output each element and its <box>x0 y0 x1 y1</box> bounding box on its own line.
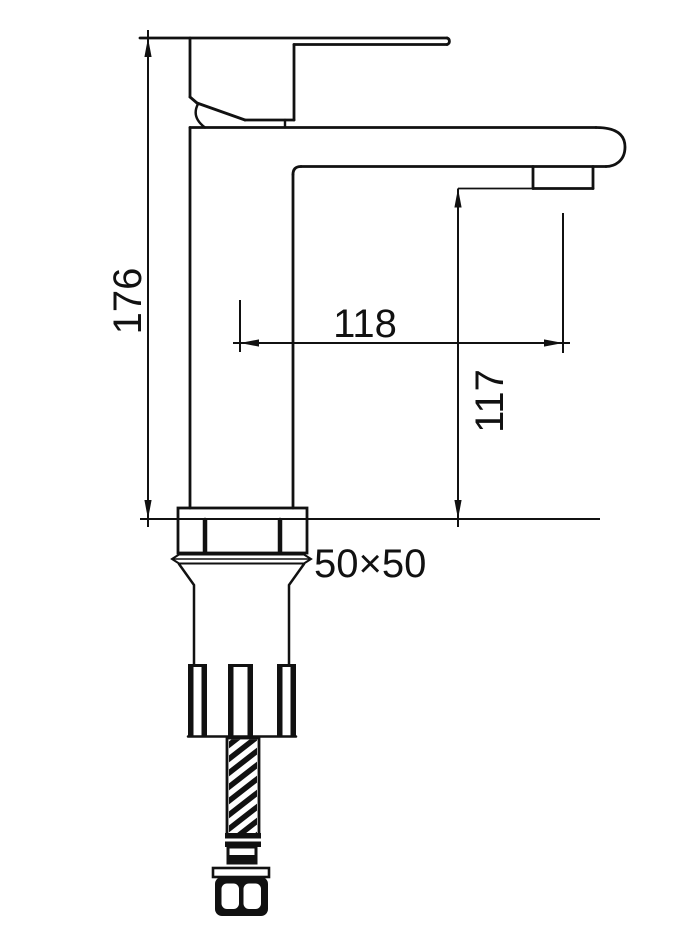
dimension-label-outlet-height: 117 <box>468 369 512 433</box>
faucet-aerator <box>533 167 593 189</box>
dimension-label-spout-reach: 118 <box>333 302 397 346</box>
supply-hose <box>225 720 261 860</box>
dimension-outlet-height <box>454 189 533 528</box>
faucet-base-flange <box>178 508 307 553</box>
dimension-spout-reach <box>233 213 570 353</box>
faucet-handle <box>140 38 449 128</box>
dimension-label-base-size: 50×50 <box>314 542 426 586</box>
hex-connector-nut <box>215 877 268 916</box>
hose-fittings <box>213 833 269 916</box>
faucet-diagram: 176 118 117 50×50 <box>0 0 698 930</box>
faucet-body-and-spout <box>190 128 625 509</box>
dimension-label-overall-height: 176 <box>106 268 150 335</box>
faucet-outline <box>140 38 625 737</box>
technical-drawing-canvas: 176 118 117 50×50 <box>0 0 698 930</box>
threaded-shank <box>179 564 304 737</box>
base-gasket <box>172 555 311 564</box>
mounting-prongs <box>188 664 296 737</box>
